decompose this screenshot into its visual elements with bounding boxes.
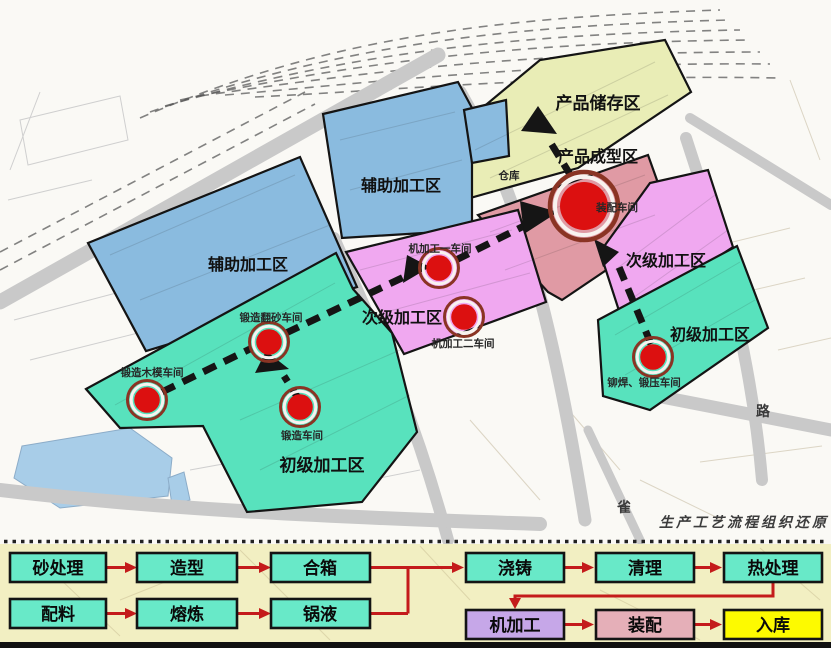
- label-forging-workshop: 锻造车间: [281, 429, 323, 442]
- label-machining1-workshop: 机加工一车间: [409, 242, 472, 255]
- label-zone-primary-left: 初级加工区: [280, 455, 365, 475]
- label-zone-storage: 产品储存区: [556, 93, 641, 113]
- flow-box-assembly-label: 装配: [627, 615, 662, 635]
- flow-box-pouring-label: 浇铸: [498, 558, 532, 578]
- flow-box-sand-treatment-label: 砂处理: [33, 558, 84, 578]
- site-plan-svg: 辅助加工区 辅助加工区 次级加工区 次级加工区 初级加工区 初级加工区 产品储存…: [0, 0, 831, 648]
- label-zone-forming: 产品成型区: [558, 147, 638, 166]
- factory-site-plan: 辅助加工区 辅助加工区 次级加工区 次级加工区 初级加工区 初级加工区 产品储存…: [0, 0, 831, 648]
- bottom-bar: [0, 642, 831, 648]
- label-zone-primary-right: 初级加工区: [670, 325, 750, 344]
- label-zone-secondary-right: 次级加工区: [626, 251, 706, 270]
- label-rivet-workshop: 铆焊、锻压车间: [607, 376, 681, 389]
- label-assembly-workshop: 装配车间: [595, 201, 638, 214]
- flow-box-batching-label: 配料: [41, 604, 75, 624]
- flow-box-molten-metal: 锅液: [271, 599, 370, 628]
- flow-box-box-assembly-label: 合箱: [303, 558, 337, 578]
- label-zone-auxiliary-lower: 辅助加工区: [208, 255, 288, 274]
- flow-box-molding: 造型: [137, 553, 237, 582]
- flow-box-heat-treatment: 热处理: [724, 553, 822, 582]
- flow-box-machining: 机加工: [466, 610, 564, 639]
- flow-box-heat-treatment-label: 热处理: [748, 558, 799, 578]
- flow-box-cleaning: 清理: [596, 553, 694, 582]
- flow-box-warehousing: 入库: [724, 610, 822, 639]
- flow-box-sand-treatment: 砂处理: [10, 553, 106, 582]
- flow-box-smelting: 熔炼: [137, 599, 237, 628]
- label-road-char: 路: [756, 403, 771, 419]
- map-caption: 生产工艺流程组织还原: [659, 514, 829, 531]
- label-zone-secondary-mid: 次级加工区: [362, 308, 442, 327]
- label-bird-char: 雀: [616, 499, 631, 515]
- flow-box-machining-label: 机加工: [490, 615, 541, 635]
- label-machining2-workshop: 机加工二车间: [432, 337, 495, 350]
- label-zone-auxiliary-upper: 辅助加工区: [361, 176, 441, 195]
- label-warehouse: 仓库: [498, 169, 520, 182]
- flow-box-molding-label: 造型: [170, 558, 204, 578]
- label-woodmold-workshop: 锻造木模车间: [121, 366, 184, 379]
- flow-box-pouring: 浇铸: [466, 553, 564, 582]
- flow-box-molten-metal-label: 锅液: [303, 604, 337, 624]
- flow-box-warehousing-label: 入库: [756, 615, 790, 635]
- flow-box-smelting-label: 熔炼: [170, 604, 204, 624]
- flow-box-cleaning-label: 清理: [628, 558, 662, 578]
- flow-box-batching: 配料: [10, 599, 106, 628]
- flow-box-box-assembly: 合箱: [271, 553, 370, 582]
- flow-box-assembly: 装配: [596, 610, 694, 639]
- label-sandcasting-workshop: 锻造翻砂车间: [240, 311, 303, 324]
- zone-auxiliary-patch: [464, 100, 509, 163]
